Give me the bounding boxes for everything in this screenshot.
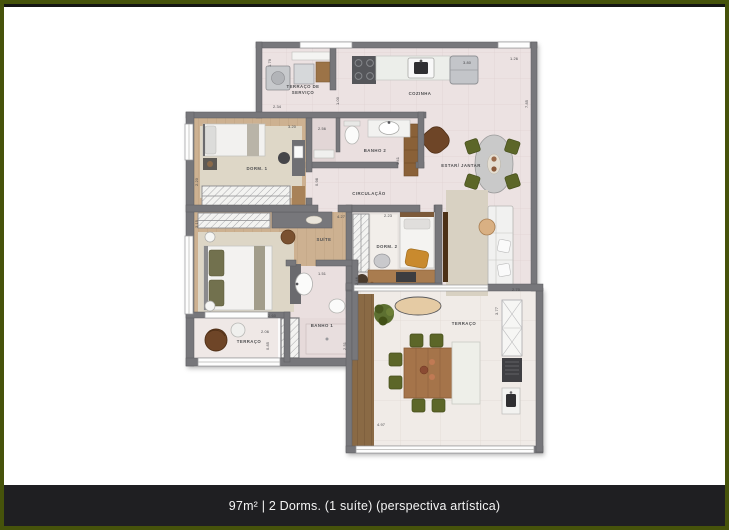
living-rug (446, 190, 488, 296)
dim-0-85: 0.85 (265, 342, 270, 350)
dim-3-77: 3.77 (494, 307, 499, 315)
pouf-suite (281, 230, 295, 244)
label-estar-jantar: ESTAR/ JANTAR (441, 163, 481, 168)
label-dorm1: DORM. 1 (246, 166, 267, 171)
dim-3-15: 3.15 (194, 220, 199, 228)
toilet-banho2 (344, 121, 360, 126)
dim-1-26: 1.26 (510, 56, 518, 61)
desk-chair-dorm2 (374, 254, 390, 268)
label-circulacao: CIRCULAÇÃO (352, 191, 386, 196)
dim-3-80: 3.80 (463, 60, 472, 65)
dim-2-70: 2.70 (512, 287, 521, 292)
label-banho2: BANHO 2 (364, 148, 387, 153)
caption-text: 97m² | 2 Dorms. (1 suíte) (perspectiva a… (229, 499, 500, 513)
dim-2-23: 2.23 (384, 213, 392, 218)
outdoor-bench (395, 297, 441, 315)
dim-1-00: 1.00 (335, 96, 340, 105)
desk-chair-dorm1 (278, 152, 290, 164)
dim-2-06: 2.06 (261, 329, 269, 334)
dim-2-51: 2.51 (342, 342, 347, 350)
lamp-suite-2 (205, 301, 215, 311)
dim-2-34: 2.34 (273, 104, 282, 109)
label-terraco: TERRAÇO (452, 321, 477, 326)
label-suite: SUÍTE (317, 237, 332, 242)
dim-4-97: 4.97 (377, 422, 385, 427)
label-terraco-servico-2: SERVIÇO (292, 90, 315, 95)
label-cozinha: COZINHA (409, 91, 432, 96)
bench-dorm1 (292, 186, 305, 206)
top-divider-line (4, 4, 725, 7)
dim-7-85: 7.85 (524, 100, 529, 108)
tv-panel (443, 212, 448, 282)
label-dorm2: DORM. 2 (376, 244, 397, 249)
dresser-suite (272, 212, 332, 228)
dim-2-56: 2.56 (318, 126, 326, 131)
lamp-suite-1 (205, 232, 215, 242)
kitchen-fixtures (352, 56, 478, 84)
dim-3-20: 3.20 (288, 124, 297, 129)
label-banho1: BANHO 1 (311, 323, 334, 328)
dim-2-46: 2.46 (354, 277, 359, 285)
dim-1-41: 1.41 (395, 157, 400, 165)
label-terraco-servico-1: TERRAÇO DE (287, 84, 320, 89)
laundry-sink (294, 64, 314, 84)
side-table (479, 219, 495, 235)
dim-1-51: 1.51 (318, 271, 326, 276)
outdoor-island (452, 342, 480, 404)
dim-0-98: 0.98 (314, 178, 319, 186)
dim-4-27: 4.27 (337, 214, 345, 219)
wood-cabinet (316, 62, 330, 82)
dim-1-79: 1.79 (267, 59, 272, 67)
accent-chair-dorm2 (405, 248, 430, 269)
dim-2-20: 2.20 (194, 177, 199, 186)
floor-plan-image: TERRAÇO DE SERVIÇO COZINHA ESTAR/ JANTAR… (0, 0, 729, 530)
caption-bar: 97m² | 2 Dorms. (1 suíte) (perspectiva a… (4, 485, 725, 526)
floor-plan-screenshot: TERRAÇO DE SERVIÇO COZINHA ESTAR/ JANTAR… (0, 0, 729, 530)
outdoor-side-table (231, 323, 245, 337)
dorm1-furniture (200, 124, 305, 206)
label-terraco-pequeno: TERRAÇO (237, 339, 262, 344)
dim-2-60: 2.60 (268, 313, 277, 318)
